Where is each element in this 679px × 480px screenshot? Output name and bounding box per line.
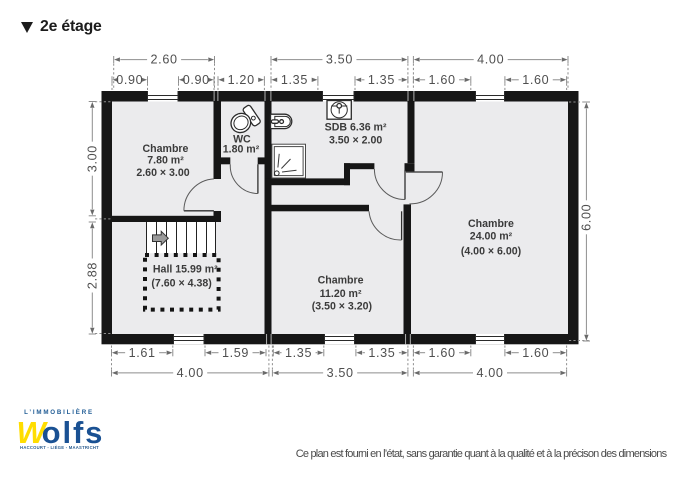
svg-text:1.59: 1.59 [222, 346, 249, 360]
svg-text:1.60: 1.60 [429, 73, 456, 87]
svg-text:1.35: 1.35 [281, 73, 308, 87]
svg-text:2.60: 2.60 [151, 53, 178, 67]
svg-text:1.35: 1.35 [285, 346, 312, 360]
svg-text:3.50 × 2.00: 3.50 × 2.00 [329, 135, 382, 147]
svg-text:Chambre: Chambre [318, 275, 364, 287]
svg-text:SDB 6.36 m²: SDB 6.36 m² [325, 122, 387, 134]
svg-text:7.80 m²: 7.80 m² [147, 155, 184, 167]
svg-text:2.60 × 3.00: 2.60 × 3.00 [136, 167, 189, 179]
svg-text:(4.00 × 6.00): (4.00 × 6.00) [461, 245, 521, 257]
svg-text:0.90: 0.90 [116, 73, 143, 87]
svg-text:3.50: 3.50 [326, 53, 353, 67]
svg-text:24.00 m²: 24.00 m² [470, 230, 513, 242]
svg-text:4.00: 4.00 [476, 366, 503, 380]
svg-text:1.60: 1.60 [522, 73, 549, 87]
svg-text:3.00: 3.00 [85, 145, 99, 172]
svg-text:3.50: 3.50 [327, 366, 354, 380]
svg-text:2.88: 2.88 [85, 262, 99, 289]
svg-text:(7.60 × 4.38): (7.60 × 4.38) [151, 278, 211, 290]
svg-text:Chambre: Chambre [468, 218, 514, 230]
svg-text:1.35: 1.35 [368, 346, 395, 360]
svg-text:1.60: 1.60 [429, 346, 456, 360]
svg-text:4.00: 4.00 [477, 53, 504, 67]
svg-text:1.35: 1.35 [368, 73, 395, 87]
svg-text:1.80 m²: 1.80 m² [223, 143, 260, 155]
svg-text:1.20: 1.20 [228, 73, 255, 87]
svg-text:1.60: 1.60 [522, 346, 549, 360]
svg-text:(3.50 × 3.20): (3.50 × 3.20) [312, 301, 372, 313]
svg-text:11.20 m²: 11.20 m² [320, 288, 362, 300]
svg-text:0.90: 0.90 [183, 73, 210, 87]
svg-text:4.00: 4.00 [177, 366, 204, 380]
svg-text:Chambre: Chambre [143, 143, 189, 155]
svg-text:1.61: 1.61 [129, 346, 156, 360]
svg-text:6.00: 6.00 [580, 204, 594, 231]
svg-text:Hall 15.99 m²: Hall 15.99 m² [153, 263, 218, 275]
